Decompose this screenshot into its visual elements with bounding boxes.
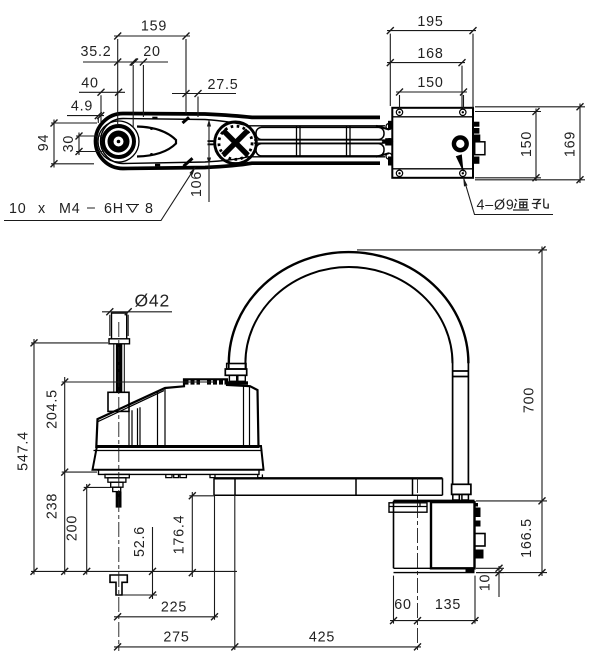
svg-text:4.9: 4.9 [71,99,93,115]
svg-text:60: 60 [394,597,412,613]
svg-text:700: 700 [522,387,538,413]
svg-text:425: 425 [309,630,335,646]
svg-text:4–Ø9: 4–Ø9 [477,198,515,214]
svg-text:x: x [38,201,46,217]
svg-text:166.5: 166.5 [519,518,535,558]
svg-text:–: – [87,200,96,216]
svg-text:238: 238 [45,493,61,519]
svg-text:10: 10 [478,574,494,592]
svg-text:275: 275 [163,630,189,646]
svg-text:168: 168 [417,46,443,62]
svg-text:135: 135 [435,597,461,613]
svg-text:150: 150 [417,75,443,91]
svg-text:M4: M4 [59,201,80,217]
svg-text:52.6: 52.6 [132,526,148,557]
svg-text:176.4: 176.4 [172,515,188,555]
svg-text:30: 30 [61,135,77,153]
svg-text:225: 225 [161,600,187,616]
svg-text:Ø42: Ø42 [135,291,170,311]
svg-text:204.5: 204.5 [45,389,61,429]
svg-text:169: 169 [563,131,579,157]
svg-text:547.4: 547.4 [16,431,32,471]
svg-text:20: 20 [143,44,161,60]
svg-text:40: 40 [81,76,99,92]
svg-text:35.2: 35.2 [80,44,111,60]
svg-text:106: 106 [189,171,205,197]
svg-text:94: 94 [36,134,52,152]
svg-text:10: 10 [9,201,27,217]
svg-text:8: 8 [145,201,154,217]
svg-text:200: 200 [65,515,81,541]
svg-text:159: 159 [141,19,167,35]
svg-text:150: 150 [519,131,535,157]
svg-text:27.5: 27.5 [207,77,238,93]
svg-text:195: 195 [417,14,443,30]
svg-text:6H: 6H [104,201,124,217]
